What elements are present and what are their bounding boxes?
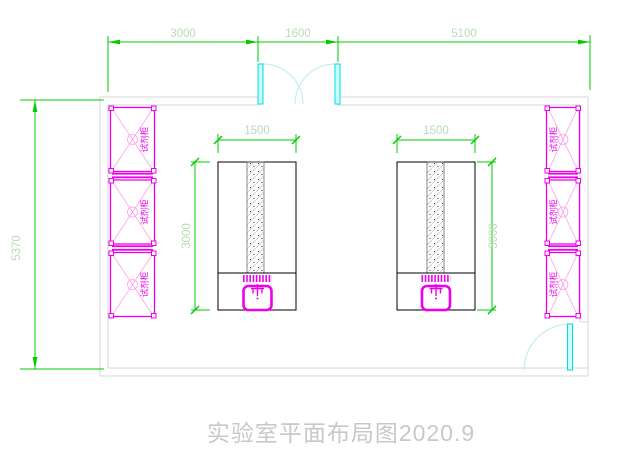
lab-bench-right: 1500 3000 [393,125,500,314]
reagent-cabinets-left: 试剂柜 [109,106,156,318]
dimension-label-top-middle: 1600 [285,28,311,40]
dim-arrow [108,40,120,45]
dimension-label-left-wall: 5370 [11,235,23,261]
top-dimension: 3000 1600 5100 [108,28,590,92]
dimension-label-top-right: 5100 [451,28,477,40]
door-top-double [258,64,340,104]
dimension-label-bench-width: 1500 [244,125,270,137]
reagent-shelf-column [247,162,264,273]
bench-depth-dimension: 3000 [477,158,500,314]
cabinet-label: 试剂柜 [139,126,149,152]
reagent-shelf-column [427,162,444,273]
door-right [524,324,573,370]
drawing-title: 实验室平面布局图2020.9 [207,420,475,446]
dimension-label-bench-width: 1500 [423,125,449,137]
bench-depth-dimension: 3000 [181,158,210,314]
dim-arrow [33,100,38,112]
cad-floor-plan-page: 3000 1600 5100 5370 试剂柜 [0,0,619,469]
dim-arrow [33,357,38,369]
dimension-label-bench-depth: 3000 [488,223,500,249]
room-walls [100,97,588,376]
reagent-cabinet: 试剂柜 [545,106,581,173]
dim-arrow [326,40,338,45]
cabinet-label: 试剂柜 [548,126,558,152]
door-leaf-right [335,64,340,104]
lab-bench-left: 1500 3000 [181,125,300,314]
dimension-label-bench-depth: 3000 [181,223,193,249]
dim-arrow [246,40,258,45]
dimension-label-top-left: 3000 [170,28,196,40]
reagent-cabinets-right: 试剂柜 [545,106,581,318]
door-leaf [568,324,573,370]
door-leaf-left [258,64,263,104]
bench-width-dimension: 1500 [214,125,300,153]
reagent-cabinet: 试剂柜 [109,106,156,173]
floor-plan-svg: 3000 1600 5100 5370 试剂柜 [0,0,619,469]
left-dimension: 5370 [11,100,104,369]
dim-arrow [578,40,590,45]
bench-width-dimension: 1500 [393,125,479,153]
